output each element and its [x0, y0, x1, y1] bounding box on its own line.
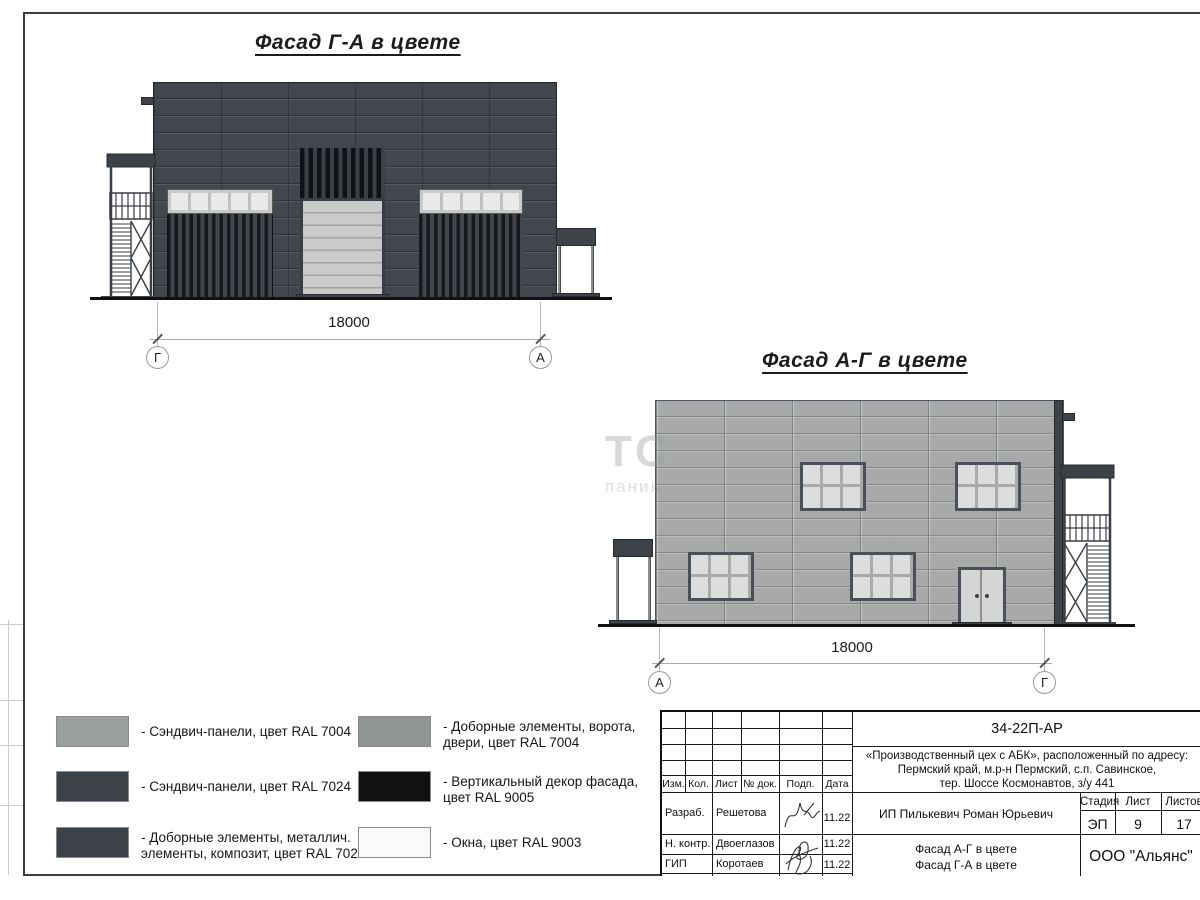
double-door — [958, 567, 1006, 625]
title-block: Изм. Кол. Лист № док. Подп. Дата Разраб.… — [660, 710, 1200, 876]
client-name: ИП Пилькевич Роман Юрьевич — [852, 807, 1080, 821]
legend-swatch — [56, 771, 129, 802]
vertical-decor-right — [419, 214, 523, 297]
row-role: ГИП — [665, 858, 687, 870]
legend-label: - Доборные элементы, металлич. элементы,… — [141, 830, 365, 861]
sheet-label: Лист — [1115, 796, 1161, 808]
signature — [780, 834, 822, 876]
extension-line — [157, 302, 158, 352]
canopy-post — [558, 246, 561, 294]
margin-strip-line — [8, 620, 9, 875]
window-panes — [423, 193, 519, 210]
doc-number: 34-22П-АР — [852, 721, 1200, 737]
legend-swatch — [56, 827, 129, 858]
window-panes — [171, 193, 269, 210]
roof-tab — [1062, 413, 1075, 421]
window — [850, 552, 916, 601]
project-name-line: Пермский край, м.р-н Пермский, с.п. Сави… — [852, 764, 1200, 776]
col-list: Лист — [712, 778, 741, 790]
legend-label-line: - Вертикальный декор фасада, — [443, 774, 638, 790]
sheet-title-line: Фасад А-Г в цвете — [852, 842, 1080, 856]
legend-label-line: цвет RAL 9005 — [443, 790, 638, 806]
legend-label: - Вертикальный декор фасада, цвет RAL 90… — [443, 774, 638, 805]
axis-marker: Г — [1033, 671, 1056, 694]
sectional-gate — [300, 198, 385, 298]
canopy-post — [591, 246, 594, 294]
signature — [780, 795, 822, 833]
legend-swatch — [358, 771, 431, 802]
canopy-post — [648, 557, 651, 622]
col-izm: Изм. — [662, 778, 685, 790]
company-name: ООО "Альянс" — [1080, 848, 1200, 866]
canopy — [556, 228, 596, 246]
drawing-sheet: { "titles": { "facade_ga": "Фасад Г-А в … — [0, 0, 1200, 900]
margin-strip-divider — [0, 700, 23, 701]
col-doc: № док. — [741, 778, 779, 790]
dimension-value: 18000 — [299, 314, 399, 331]
canopy — [613, 539, 653, 557]
legend-label-line: элементы, композит, цвет RAL 7024 — [141, 846, 365, 862]
extension-line — [659, 628, 660, 676]
legend-label: - Сэндвич-панели, цвет RAL 7024 — [141, 779, 351, 795]
axis-marker: А — [648, 671, 671, 694]
door-handle — [985, 594, 989, 598]
frame-top — [23, 12, 1200, 14]
row-date: 11.22 — [822, 838, 852, 850]
stage-value: ЭП — [1080, 816, 1115, 832]
window — [688, 552, 754, 601]
extension-line — [1044, 628, 1045, 676]
window — [955, 462, 1021, 511]
row-name: Решетова — [716, 807, 766, 819]
facade-ga-title: Фасад Г-А в цвете — [255, 31, 461, 55]
extension-line — [540, 302, 541, 352]
col-kol: Кол. — [685, 778, 712, 790]
legend-label: - Сэндвич-панели, цвет RAL 7004 — [141, 724, 351, 740]
window-band-left — [167, 189, 273, 214]
legend-swatch — [358, 827, 431, 858]
frame-left — [23, 12, 25, 876]
project-name-line: тер. Шоссе Космонавтов, з/у 441 — [852, 778, 1200, 790]
legend-swatch — [358, 716, 431, 747]
row-role: Разраб. — [665, 807, 705, 819]
vertical-decor-left — [167, 214, 273, 297]
sheets-label: Листов — [1161, 796, 1200, 808]
fire-escape-stair — [1060, 462, 1118, 626]
legend-label-line: - Сэндвич-панели, цвет RAL 7024 — [141, 779, 351, 795]
ground-line — [598, 624, 1135, 627]
window-band-right — [419, 189, 523, 214]
legend-label-line: - Доборные элементы, металлич. — [141, 830, 365, 846]
col-date: Дата — [822, 778, 852, 790]
canopy-post — [616, 557, 619, 622]
fire-escape-stair — [100, 148, 162, 302]
sheet-title-line: Фасад Г-А в цвете — [852, 858, 1080, 872]
margin-strip-divider — [0, 805, 23, 806]
legend-label: - Доборные элементы, ворота, двери, цвет… — [443, 719, 635, 750]
axis-marker: А — [529, 346, 552, 369]
legend-label: - Окна, цвет RAL 9003 — [443, 835, 581, 851]
door-handle — [975, 594, 979, 598]
row-name: Коротаев — [716, 858, 764, 870]
dimension-line — [652, 663, 1052, 664]
window — [800, 462, 866, 511]
sheets-value: 17 — [1161, 816, 1200, 832]
legend-label-line: - Окна, цвет RAL 9003 — [443, 835, 581, 851]
row-date: 11.22 — [822, 859, 852, 871]
axis-marker: Г — [146, 346, 169, 369]
stage-label: Стадия — [1080, 796, 1115, 808]
row-name: Двоеглазов — [716, 838, 774, 850]
legend-label-line: - Сэндвич-панели, цвет RAL 7004 — [141, 724, 351, 740]
margin-strip-divider — [0, 624, 23, 625]
margin-strip-divider — [0, 745, 23, 746]
row-role: Н. контр. — [665, 838, 710, 850]
dimension-value: 18000 — [802, 639, 902, 656]
legend-label-line: - Доборные элементы, ворота, — [443, 719, 635, 735]
ground-line — [90, 297, 612, 300]
vertical-decor-center — [300, 148, 385, 200]
facade-ag-title: Фасад А-Г в цвете — [762, 349, 968, 373]
legend-swatch — [56, 716, 129, 747]
legend-label-line: двери, цвет RAL 7004 — [443, 735, 635, 751]
row-date: 11.22 — [822, 812, 852, 824]
col-sign: Подп. — [779, 778, 822, 790]
project-name-line: «Производственный цех с АБК», расположен… — [852, 750, 1200, 762]
sheet-value: 9 — [1115, 816, 1161, 832]
dimension-line — [150, 339, 550, 340]
